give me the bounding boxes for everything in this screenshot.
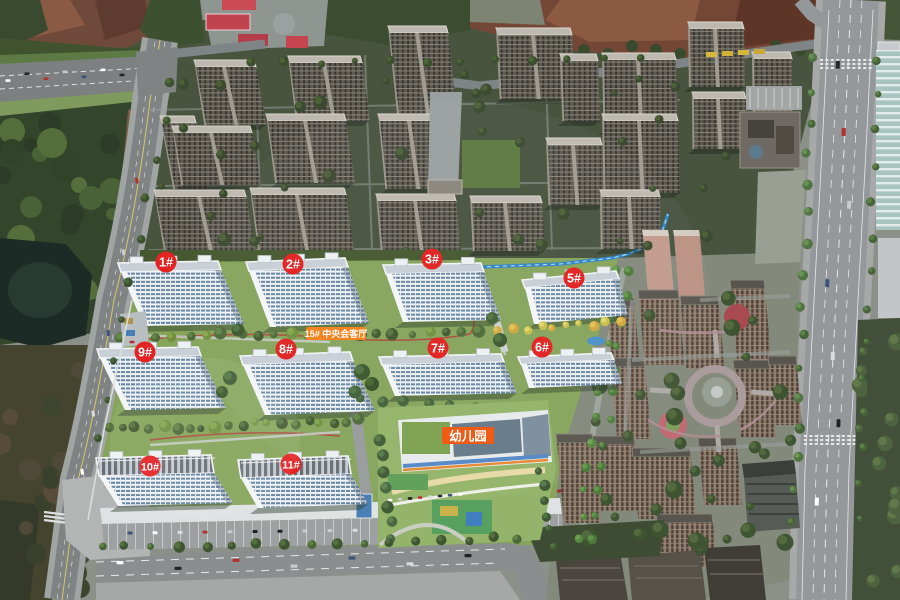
svg-text:9#: 9# [138, 345, 152, 359]
svg-text:幼儿园: 幼儿园 [449, 429, 487, 444]
svg-text:15# 中央会客厅: 15# 中央会客厅 [305, 328, 368, 339]
svg-text:1#: 1# [159, 255, 173, 269]
